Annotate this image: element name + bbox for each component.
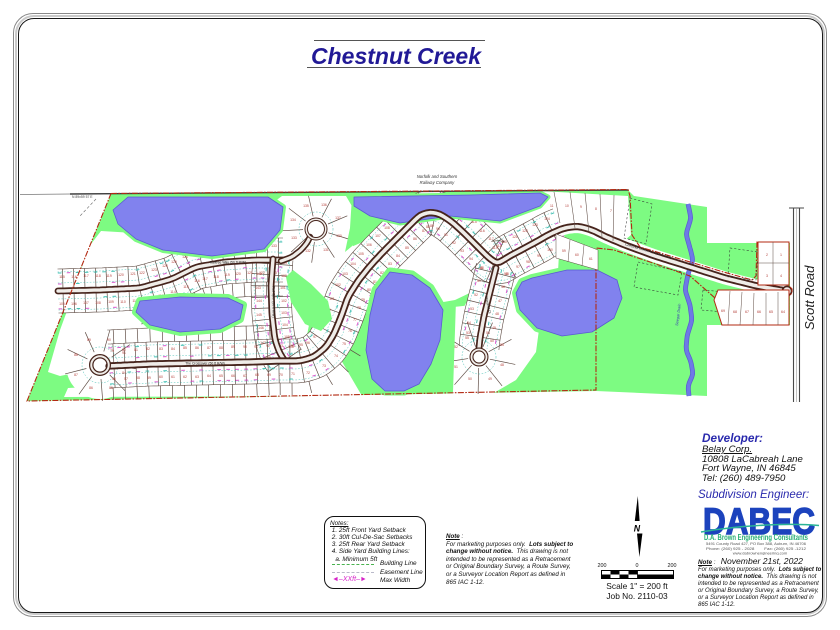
- svg-text:60: 60: [575, 253, 579, 257]
- svg-text:137: 137: [335, 216, 341, 220]
- svg-text:62: 62: [183, 375, 187, 379]
- svg-text:106: 106: [71, 302, 77, 306]
- svg-text:86: 86: [195, 346, 199, 350]
- svg-text:51: 51: [454, 365, 458, 369]
- svg-text:86: 86: [413, 237, 417, 241]
- svg-text:133: 133: [271, 244, 277, 248]
- svg-text:90: 90: [107, 338, 111, 342]
- svg-text:132: 132: [305, 249, 311, 253]
- svg-text:116: 116: [194, 279, 200, 283]
- svg-text:67: 67: [745, 310, 749, 314]
- svg-text:68: 68: [733, 310, 737, 314]
- svg-text:116: 116: [479, 229, 485, 233]
- svg-text:54: 54: [467, 321, 471, 325]
- svg-text:56: 56: [112, 377, 116, 381]
- svg-text:67: 67: [243, 374, 247, 378]
- svg-text:106: 106: [288, 345, 294, 349]
- svg-text:103: 103: [281, 311, 287, 315]
- svg-text:106: 106: [366, 243, 372, 247]
- svg-text:61: 61: [171, 375, 175, 379]
- svg-text:143: 143: [255, 286, 261, 290]
- svg-text:102: 102: [281, 299, 287, 303]
- svg-text:65: 65: [769, 310, 773, 314]
- svg-text:87: 87: [422, 229, 426, 233]
- svg-text:85: 85: [405, 246, 409, 250]
- svg-text:120: 120: [501, 240, 507, 244]
- svg-text:85: 85: [183, 346, 187, 350]
- svg-text:47: 47: [498, 299, 502, 303]
- svg-text:131: 131: [323, 248, 329, 252]
- svg-text:85: 85: [109, 386, 113, 390]
- svg-text:89: 89: [430, 224, 434, 228]
- svg-text:90: 90: [436, 227, 440, 231]
- svg-text:Rail Spur (50 ft R/W): Rail Spur (50 ft R/W): [272, 286, 276, 317]
- svg-text:100: 100: [547, 248, 553, 252]
- svg-text:107: 107: [375, 234, 381, 238]
- svg-text:103: 103: [342, 272, 348, 276]
- svg-text:11: 11: [550, 204, 554, 208]
- svg-text:45: 45: [505, 272, 509, 276]
- svg-text:59: 59: [562, 249, 566, 253]
- svg-text:121: 121: [130, 272, 136, 276]
- svg-text:68: 68: [255, 373, 259, 377]
- svg-text:2: 2: [766, 253, 768, 257]
- svg-text:130: 130: [336, 234, 342, 238]
- svg-text:91: 91: [254, 345, 258, 349]
- svg-text:89: 89: [87, 338, 91, 342]
- svg-text:92: 92: [452, 241, 456, 245]
- svg-text:57: 57: [124, 377, 128, 381]
- svg-text:Railway Company: Railway Company: [420, 180, 455, 185]
- svg-text:104: 104: [350, 262, 356, 266]
- svg-text:119: 119: [224, 273, 230, 277]
- svg-text:91: 91: [444, 233, 448, 237]
- svg-text:119: 119: [492, 246, 498, 250]
- svg-text:98: 98: [526, 260, 530, 264]
- svg-text:84: 84: [122, 371, 126, 375]
- svg-text:Scott Road: Scott Road: [802, 265, 817, 330]
- svg-text:49: 49: [492, 326, 496, 330]
- svg-text:104: 104: [282, 323, 288, 327]
- svg-text:84: 84: [396, 254, 400, 258]
- svg-text:97: 97: [516, 265, 520, 269]
- svg-text:50: 50: [490, 339, 494, 343]
- svg-text:73: 73: [322, 364, 326, 368]
- svg-text:61: 61: [589, 257, 593, 261]
- svg-text:115: 115: [59, 275, 65, 279]
- svg-text:108: 108: [384, 226, 390, 230]
- svg-text:8: 8: [595, 207, 597, 211]
- svg-text:The Crossover (50 ft R/W): The Crossover (50 ft R/W): [185, 362, 225, 366]
- svg-text:134: 134: [290, 218, 296, 222]
- svg-text:66: 66: [757, 310, 761, 314]
- svg-text:117: 117: [488, 237, 494, 241]
- svg-text:121: 121: [512, 235, 518, 239]
- svg-text:53: 53: [466, 331, 470, 335]
- svg-text:89: 89: [231, 345, 235, 349]
- svg-text:71: 71: [291, 372, 295, 376]
- svg-text:81: 81: [134, 348, 138, 352]
- svg-text:100: 100: [281, 274, 287, 278]
- svg-text:50: 50: [480, 266, 484, 270]
- svg-text:136: 136: [321, 203, 327, 207]
- svg-text:122: 122: [139, 271, 145, 275]
- svg-text:142: 142: [256, 272, 262, 276]
- svg-text:93: 93: [460, 249, 464, 253]
- svg-text:115: 115: [183, 285, 189, 289]
- svg-text:105: 105: [284, 335, 290, 339]
- svg-text:144: 144: [256, 299, 262, 303]
- svg-text:87: 87: [74, 373, 78, 377]
- svg-text:64: 64: [207, 374, 211, 378]
- svg-text:50: 50: [468, 377, 472, 381]
- svg-text:107: 107: [83, 301, 89, 305]
- svg-text:101: 101: [280, 286, 286, 290]
- svg-text:83: 83: [159, 347, 163, 351]
- svg-text:69: 69: [267, 373, 271, 377]
- svg-text:Norfolk and Southern: Norfolk and Southern: [417, 174, 458, 179]
- svg-text:52: 52: [474, 293, 478, 297]
- svg-text:66: 66: [231, 374, 235, 378]
- svg-text:52: 52: [454, 345, 458, 349]
- svg-text:123: 123: [532, 223, 538, 227]
- svg-text:97: 97: [313, 335, 317, 339]
- svg-text:4: 4: [780, 274, 782, 278]
- svg-text:102: 102: [335, 283, 341, 287]
- svg-text:87: 87: [207, 346, 211, 350]
- svg-text:145: 145: [256, 313, 262, 317]
- svg-text:101: 101: [329, 297, 335, 301]
- svg-text:74: 74: [334, 354, 338, 358]
- svg-text:63: 63: [195, 375, 199, 379]
- svg-text:72: 72: [306, 371, 310, 375]
- svg-text:82: 82: [146, 347, 150, 351]
- svg-text:www.dabrownengineering.com: www.dabrownengineering.com: [733, 551, 788, 556]
- svg-text:110: 110: [120, 300, 126, 304]
- svg-text:120: 120: [118, 273, 124, 277]
- svg-text:117: 117: [83, 274, 89, 278]
- svg-text:95: 95: [299, 343, 303, 347]
- svg-text:9: 9: [580, 205, 582, 209]
- svg-text:3: 3: [766, 274, 768, 278]
- svg-text:86: 86: [89, 386, 93, 390]
- svg-text:76: 76: [348, 329, 352, 333]
- svg-text:55: 55: [500, 343, 504, 347]
- svg-text:114: 114: [170, 290, 176, 294]
- svg-text:70: 70: [279, 373, 283, 377]
- svg-text:N 89x59 57 E: N 89x59 57 E: [72, 195, 93, 199]
- svg-text:90: 90: [243, 345, 247, 349]
- svg-text:65: 65: [219, 374, 223, 378]
- svg-text:59: 59: [147, 376, 151, 380]
- svg-text:116: 116: [71, 275, 77, 279]
- svg-text:120: 120: [235, 272, 241, 276]
- svg-text:121: 121: [247, 271, 253, 275]
- svg-text:122: 122: [522, 229, 528, 233]
- svg-text:69: 69: [721, 309, 725, 313]
- svg-text:80: 80: [367, 288, 371, 292]
- svg-text:133: 133: [291, 236, 297, 240]
- svg-text:117: 117: [202, 277, 208, 281]
- svg-text:79: 79: [361, 298, 365, 302]
- svg-text:83: 83: [388, 262, 392, 266]
- svg-text:58: 58: [136, 376, 140, 380]
- svg-text:88: 88: [74, 353, 78, 357]
- svg-text:124: 124: [162, 264, 168, 268]
- svg-text:99: 99: [537, 254, 541, 258]
- svg-text:Railtree Way (50 ft R/W): Railtree Way (50 ft R/W): [210, 261, 247, 265]
- svg-text:79: 79: [110, 349, 114, 353]
- svg-text:60: 60: [159, 375, 163, 379]
- svg-text:88: 88: [219, 346, 223, 350]
- svg-text:48: 48: [500, 363, 504, 367]
- svg-text:46: 46: [501, 285, 505, 289]
- svg-text:7: 7: [610, 209, 612, 213]
- svg-text:105: 105: [59, 302, 65, 306]
- svg-text:10: 10: [565, 204, 569, 208]
- svg-text:135: 135: [303, 204, 309, 208]
- svg-text:146: 146: [258, 326, 264, 330]
- svg-text:94: 94: [469, 257, 473, 261]
- svg-text:51: 51: [477, 279, 481, 283]
- svg-text:124: 124: [544, 217, 550, 221]
- svg-text:105: 105: [358, 252, 364, 256]
- svg-text:78: 78: [357, 306, 361, 310]
- svg-text:109: 109: [108, 300, 114, 304]
- svg-text:49: 49: [488, 377, 492, 381]
- svg-text:96: 96: [306, 341, 310, 345]
- svg-text:54: 54: [486, 331, 490, 335]
- svg-text:108: 108: [95, 301, 101, 305]
- svg-text:N: N: [634, 524, 641, 534]
- svg-text:123: 123: [151, 268, 157, 272]
- svg-text:118: 118: [213, 275, 219, 279]
- svg-text:119: 119: [106, 274, 112, 278]
- svg-text:125: 125: [171, 260, 177, 264]
- svg-text:53: 53: [470, 307, 474, 311]
- svg-text:75: 75: [342, 342, 346, 346]
- svg-text:1: 1: [780, 253, 782, 257]
- svg-text:48: 48: [495, 312, 499, 316]
- svg-text:147: 147: [260, 341, 266, 345]
- svg-text:84: 84: [171, 347, 175, 351]
- svg-text:64: 64: [781, 310, 785, 314]
- svg-text:91: 91: [122, 351, 126, 355]
- svg-text:118: 118: [95, 274, 101, 278]
- svg-text:92: 92: [266, 344, 270, 348]
- svg-text:77: 77: [353, 318, 357, 322]
- svg-text:55: 55: [465, 336, 469, 340]
